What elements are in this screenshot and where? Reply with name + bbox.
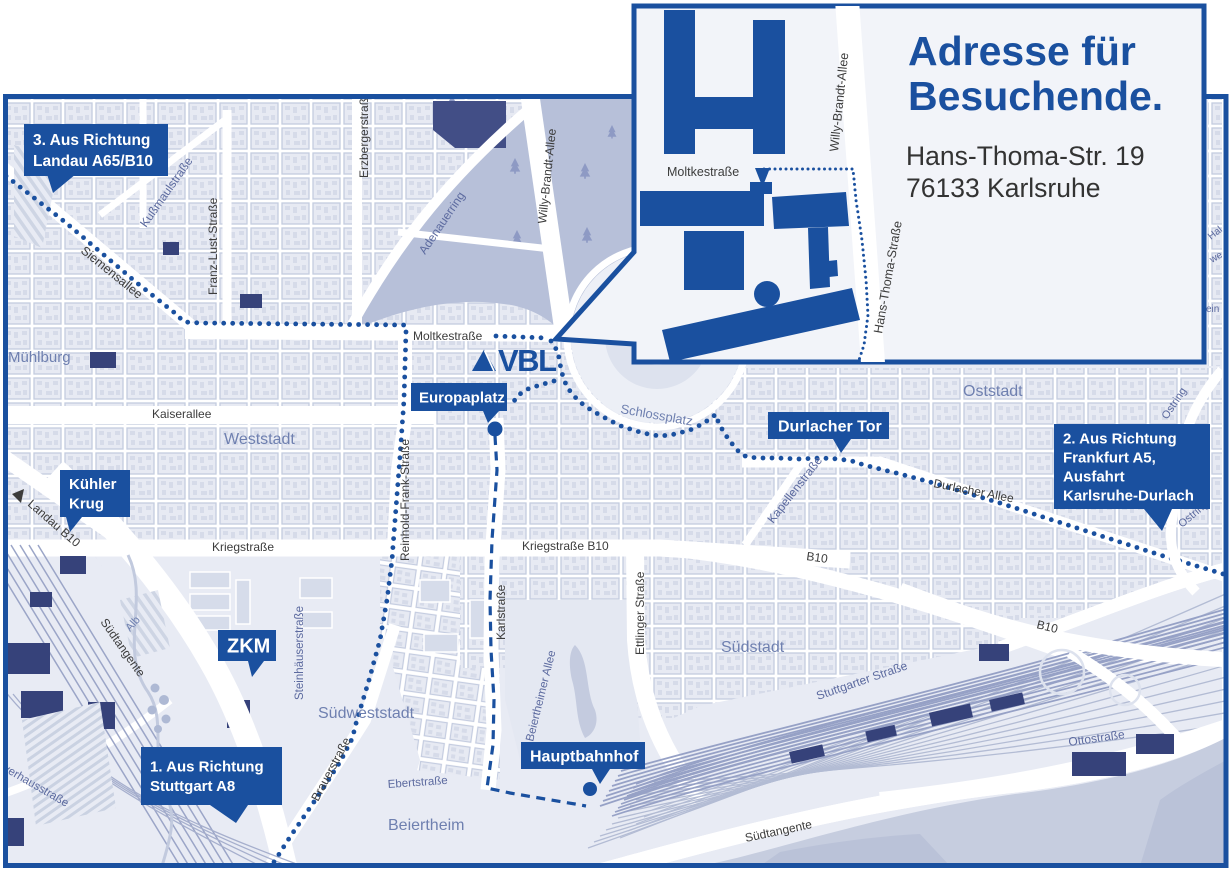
- svg-text:Stuttgart A8: Stuttgart A8: [150, 778, 235, 795]
- svg-text:Südstadt: Südstadt: [721, 639, 785, 656]
- svg-text:Beiertheim: Beiertheim: [388, 817, 464, 834]
- svg-text:Landau A65/B10: Landau A65/B10: [33, 153, 153, 170]
- svg-text:Krug: Krug: [69, 496, 104, 513]
- svg-text:Reinhold-Frank-Straße: Reinhold-Frank-Straße: [398, 439, 412, 561]
- svg-text:Frankfurt A5,: Frankfurt A5,: [1063, 449, 1156, 466]
- svg-text:Kühler: Kühler: [69, 476, 117, 493]
- svg-text:B10: B10: [806, 549, 829, 566]
- svg-text:1. Aus Richtung: 1. Aus Richtung: [150, 759, 264, 776]
- svg-text:Ettlinger Straße: Ettlinger Straße: [633, 571, 647, 655]
- svg-text:Erzbergerstraße: Erzbergerstraße: [357, 91, 371, 178]
- svg-text:Moltkestraße: Moltkestraße: [413, 329, 483, 343]
- svg-text:ZKM: ZKM: [227, 636, 270, 658]
- svg-text:Weststadt: Weststadt: [224, 431, 295, 448]
- svg-text:Hauptbahnhof: Hauptbahnhof: [530, 748, 639, 765]
- svg-text:Mühlburg: Mühlburg: [8, 349, 71, 366]
- svg-text:Europaplatz: Europaplatz: [419, 389, 505, 406]
- svg-text:Kaiserallee: Kaiserallee: [152, 407, 212, 421]
- svg-text:Südweststadt: Südweststadt: [318, 705, 415, 722]
- svg-text:2. Aus Richtung: 2. Aus Richtung: [1063, 430, 1177, 447]
- svg-text:76133 Karlsruhe: 76133 Karlsruhe: [906, 173, 1100, 203]
- svg-text:Besuchende.: Besuchende.: [908, 73, 1163, 119]
- svg-text:3. Aus Richtung: 3. Aus Richtung: [33, 132, 150, 149]
- svg-text:Kriegstraße: Kriegstraße: [212, 540, 274, 554]
- svg-text:Steinhäuserstraße: Steinhäuserstraße: [294, 606, 306, 700]
- svg-text:Moltkestraße: Moltkestraße: [667, 165, 739, 179]
- svg-text:Karlstraße: Karlstraße: [494, 584, 508, 640]
- svg-text:Franz-Lust-Straße: Franz-Lust-Straße: [206, 197, 220, 295]
- svg-text:Adresse für: Adresse für: [908, 28, 1136, 74]
- svg-text:Ausfahrt: Ausfahrt: [1063, 468, 1125, 485]
- svg-text:Kriegstraße B10: Kriegstraße B10: [522, 539, 609, 553]
- svg-text:VBL: VBL: [498, 343, 556, 378]
- svg-text:ein: ein: [1206, 304, 1219, 315]
- svg-text:Durlacher Tor: Durlacher Tor: [778, 418, 882, 435]
- svg-text:Karlsruhe-Durlach: Karlsruhe-Durlach: [1063, 487, 1194, 504]
- svg-text:Hans-Thoma-Str. 19: Hans-Thoma-Str. 19: [906, 141, 1145, 171]
- svg-text:Oststadt: Oststadt: [963, 383, 1023, 400]
